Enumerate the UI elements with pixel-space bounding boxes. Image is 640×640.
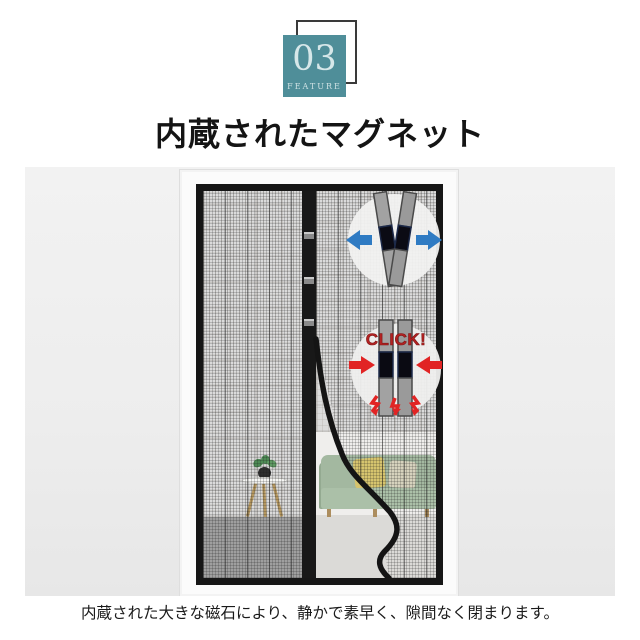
feature-label: FEATURE bbox=[287, 82, 342, 91]
page-title: 内蔵されたマグネット bbox=[0, 109, 640, 155]
feature-caption: 内蔵された大きな磁石により、静かで素早く、隙間なく閉まります。 bbox=[0, 601, 640, 623]
click-label: CLICK! bbox=[366, 330, 427, 349]
callout-magnet-open bbox=[344, 190, 444, 290]
callout-magnet-close: CLICK! bbox=[341, 314, 451, 424]
feature-badge: 03 FEATURE bbox=[283, 35, 346, 97]
product-feature-page: 03 FEATURE 内蔵されたマグネット bbox=[0, 0, 640, 640]
product-photo: CLICK! bbox=[25, 167, 615, 596]
feature-number: 03 bbox=[292, 37, 337, 81]
